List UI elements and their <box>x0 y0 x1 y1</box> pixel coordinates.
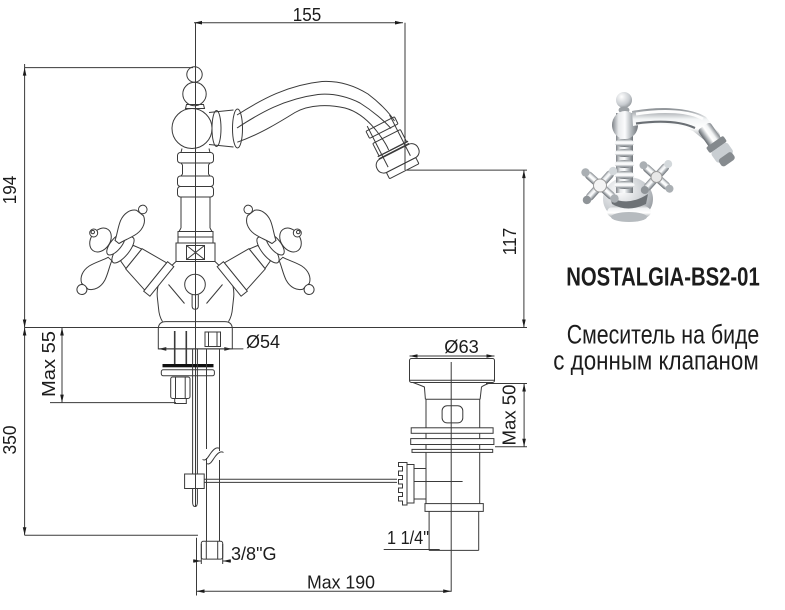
svg-text:1 1/4": 1 1/4" <box>387 527 429 548</box>
svg-text:194: 194 <box>0 176 20 205</box>
svg-text:NOSTALGIA-BS2-01: NOSTALGIA-BS2-01 <box>566 262 760 292</box>
svg-text:117: 117 <box>499 228 520 256</box>
svg-text:350: 350 <box>0 426 20 455</box>
svg-text:Max 55: Max 55 <box>38 331 59 397</box>
svg-text:Max 190: Max 190 <box>307 572 375 593</box>
svg-text:Max 50: Max 50 <box>499 385 520 446</box>
svg-text:155: 155 <box>293 4 322 25</box>
svg-text:с донным клапаном: с донным клапаном <box>553 346 758 376</box>
svg-text:Ø63: Ø63 <box>444 336 479 357</box>
svg-text:Ø54: Ø54 <box>246 331 280 352</box>
svg-text:3/8"G: 3/8"G <box>231 543 277 564</box>
